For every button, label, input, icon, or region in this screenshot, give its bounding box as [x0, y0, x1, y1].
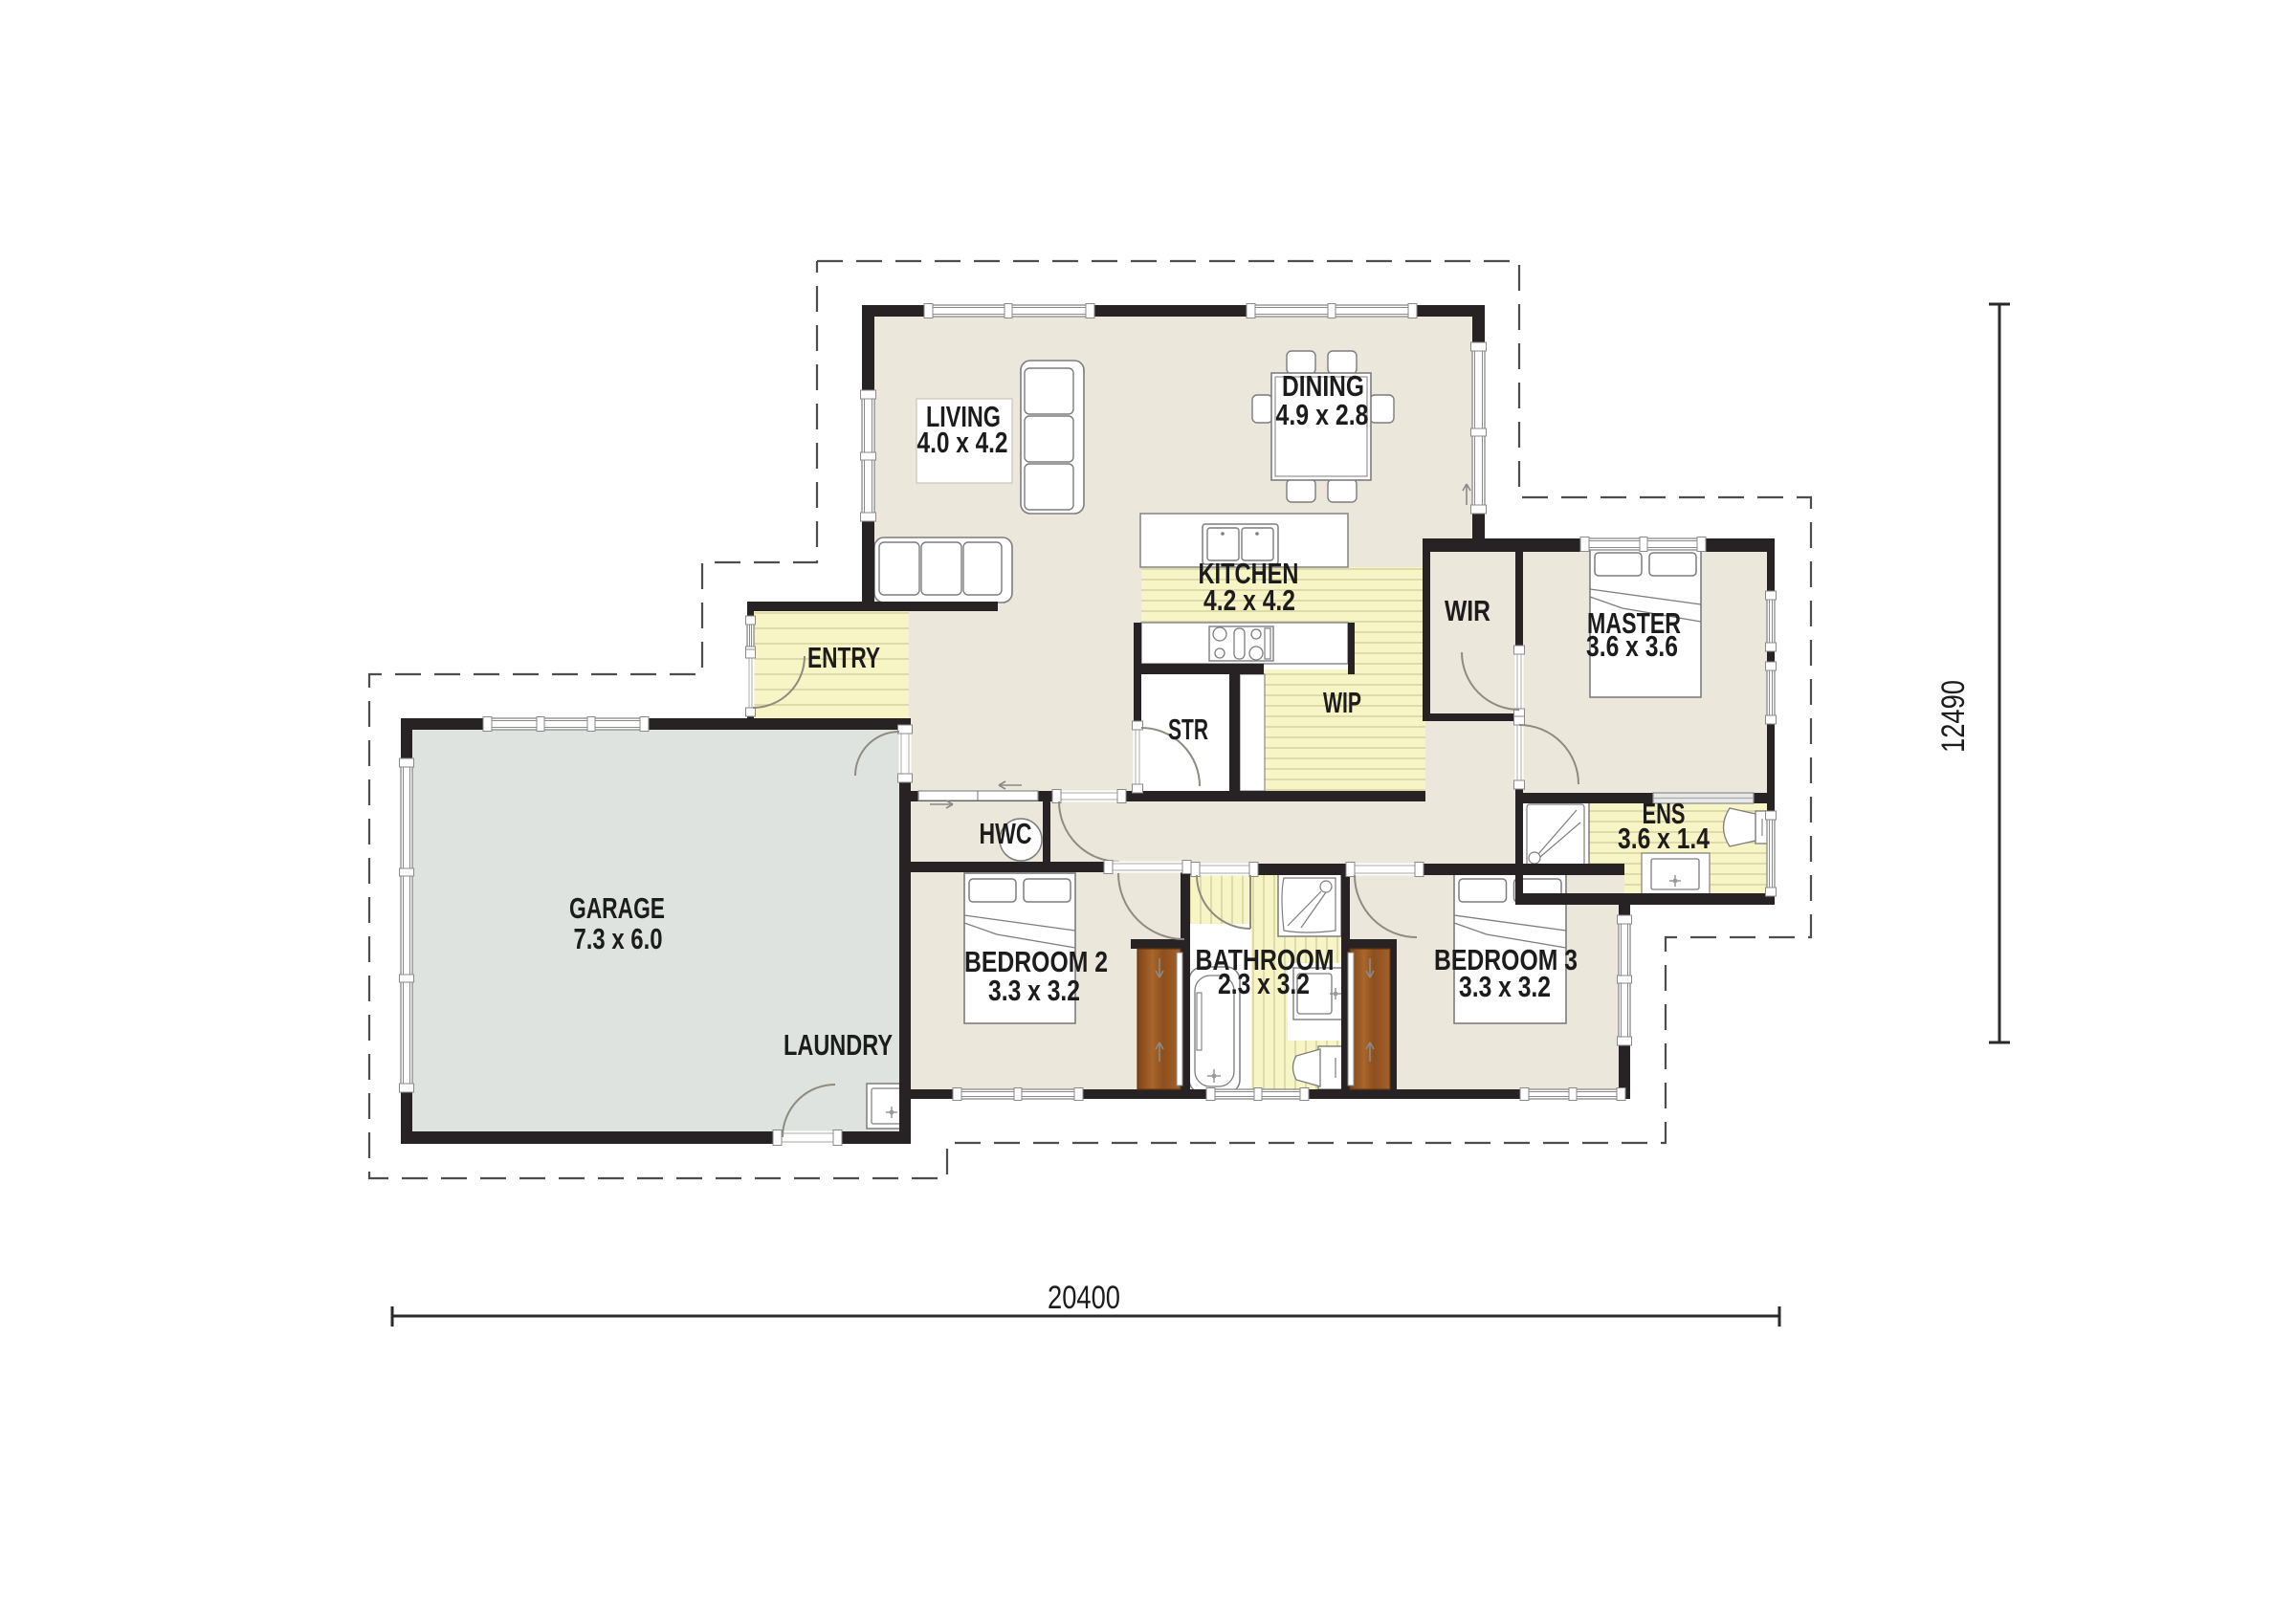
svg-text:2.3 x 3.2: 2.3 x 3.2	[1218, 967, 1310, 1000]
svg-text:HWC: HWC	[980, 817, 1032, 850]
svg-text:LAUNDRY: LAUNDRY	[784, 1028, 893, 1062]
svg-text:3.3 x 3.2: 3.3 x 3.2	[988, 974, 1080, 1007]
svg-text:3.6 x 1.4: 3.6 x 1.4	[1618, 822, 1711, 855]
svg-text:12490: 12490	[1935, 680, 1972, 753]
svg-text:GARAGE: GARAGE	[569, 891, 665, 925]
svg-text:4.9 x 2.8: 4.9 x 2.8	[1276, 398, 1369, 431]
svg-text:3.3 x 3.2: 3.3 x 3.2	[1459, 970, 1551, 1003]
svg-text:ENTRY: ENTRY	[807, 641, 880, 674]
svg-text:STR: STR	[1168, 713, 1208, 746]
svg-text:4.2 x 4.2: 4.2 x 4.2	[1203, 583, 1295, 617]
svg-text:WIR: WIR	[1445, 594, 1490, 627]
svg-text:4.0 x 4.2: 4.0 x 4.2	[917, 426, 1008, 459]
svg-text:7.3 x 6.0: 7.3 x 6.0	[574, 922, 663, 955]
svg-text:WIP: WIP	[1323, 686, 1361, 719]
svg-text:3.6 x 3.6: 3.6 x 3.6	[1586, 629, 1678, 663]
svg-text:20400: 20400	[1048, 1280, 1120, 1316]
